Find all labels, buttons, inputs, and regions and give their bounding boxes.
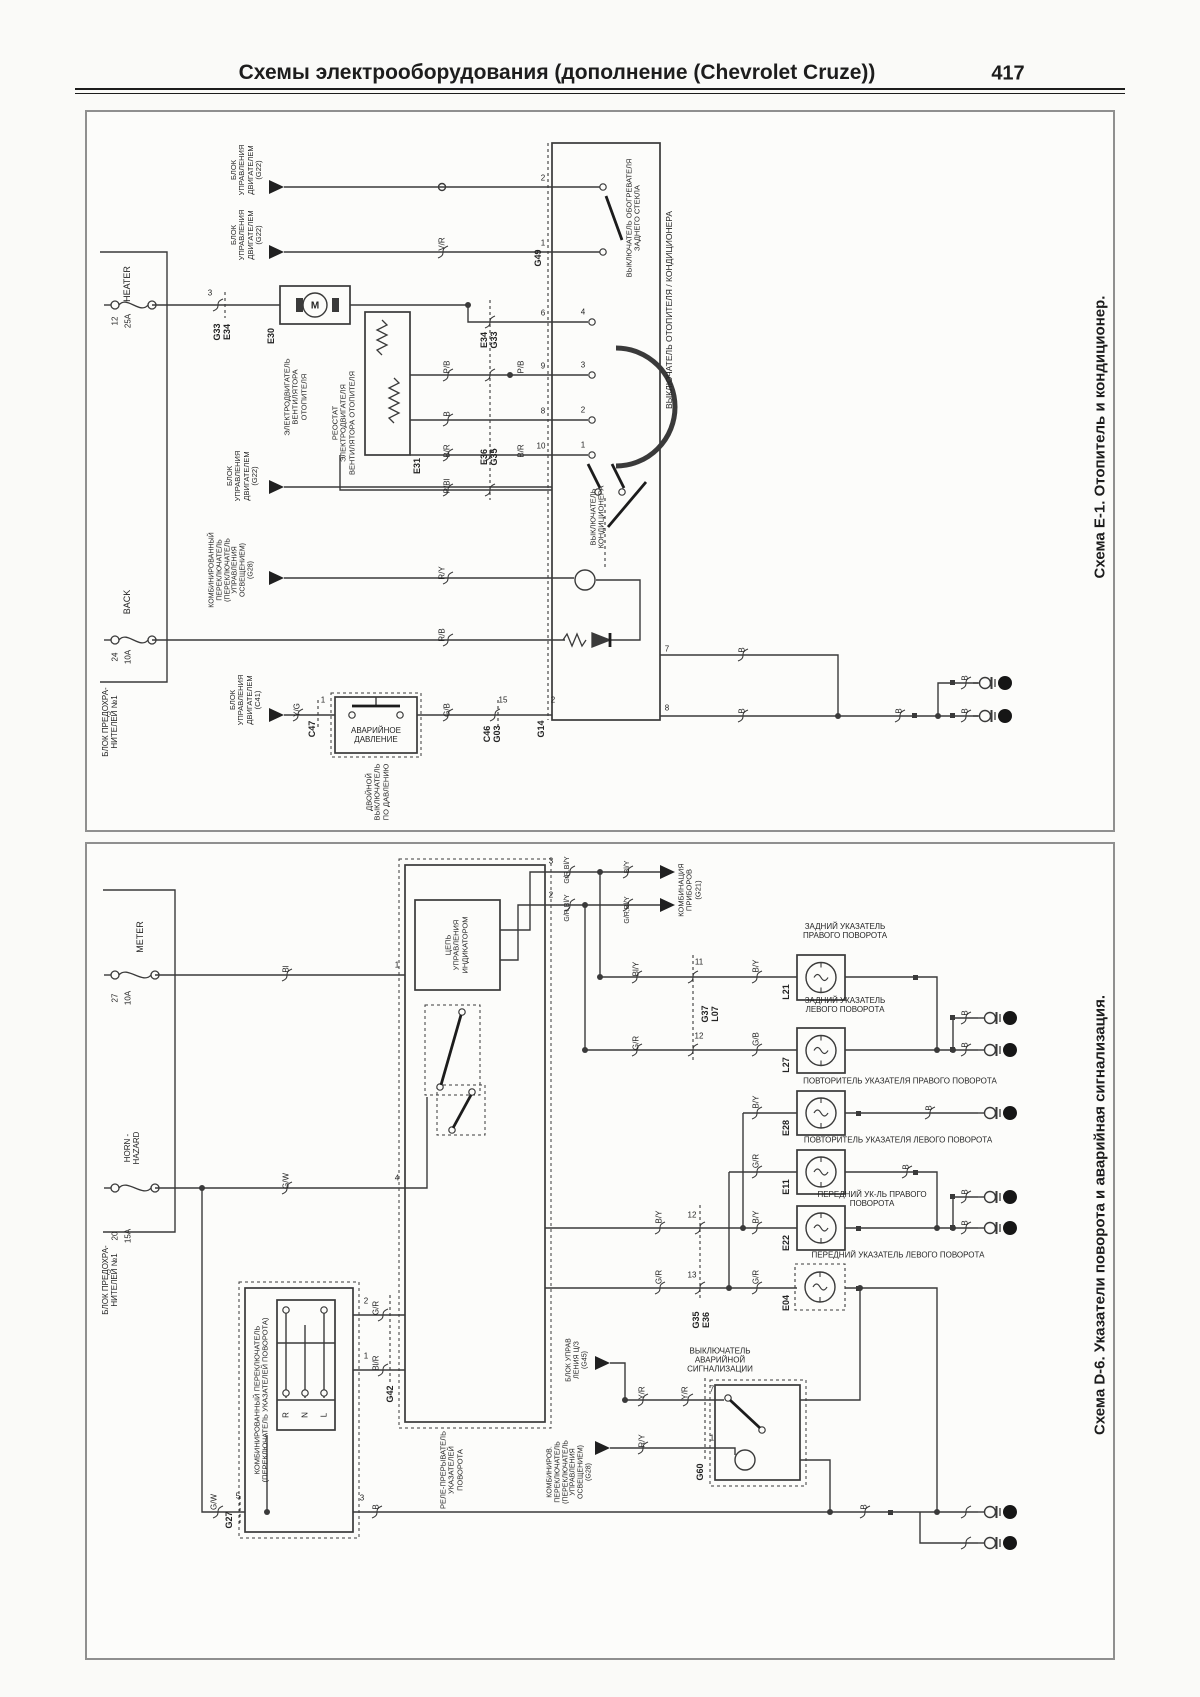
diagram-label: G/R,Bl/Y xyxy=(564,856,572,883)
diagram-label: БЛОК УПРАВЛЕНИЯ ДВИГАТЕЛЕМ (G22) xyxy=(230,210,264,261)
diagram-label: 1 xyxy=(321,697,325,706)
diagram-label: Bl/Y xyxy=(624,861,632,874)
contact xyxy=(302,1390,308,1396)
diagram-label: BACK xyxy=(122,590,132,615)
switch-blade xyxy=(441,1015,461,1085)
diagram-label: G27 xyxy=(224,1511,234,1528)
diagram-label: 10A xyxy=(125,991,134,1005)
diagram-label: G/R xyxy=(753,1270,762,1284)
diagram-label: E31 xyxy=(412,458,422,474)
tick xyxy=(332,298,339,312)
diagram-label: 1 xyxy=(710,1435,714,1444)
lamp-filament-icon xyxy=(814,1169,828,1175)
switch-blade xyxy=(730,1400,760,1428)
diagram-label: 10 xyxy=(537,443,546,452)
fuse-symbol xyxy=(119,972,151,978)
diagram-label: G/W xyxy=(283,1173,292,1189)
diagram-label: БЛОК ПРЕДОХРА- НИТЕЛЕЙ №1 xyxy=(102,687,120,756)
diagram-label: L xyxy=(321,1413,330,1417)
wire xyxy=(800,1460,830,1512)
schema-d6-caption: Схема D-6. Указатели поворота и аварийна… xyxy=(1092,995,1109,1435)
diagram-label: КОМБИНИРОВАННЫЙ ПЕРЕКЛЮЧАТЕЛЬ (ПЕРЕКЛЮЧА… xyxy=(209,532,256,607)
diagram-label: КОМБИНИРОВ. ПЕРЕКЛЮЧАТЕЛЬ (ПЕРЕКЛЮЧАТЕЛЬ… xyxy=(547,1440,594,1504)
diagram-label: G/R xyxy=(753,1154,762,1168)
ground-point-id xyxy=(1003,1043,1017,1057)
contact xyxy=(600,249,606,255)
tick xyxy=(950,713,955,718)
diagram-label: 15A xyxy=(125,1229,134,1243)
wire xyxy=(800,1288,860,1400)
diagram-label: 10A xyxy=(125,650,134,664)
junction-dot xyxy=(264,1509,270,1515)
diagram-label: 3 xyxy=(581,362,585,371)
junction-dot xyxy=(597,869,603,875)
diagram-label: C46 G03 xyxy=(482,725,502,742)
diagram-label: R/B xyxy=(439,628,448,641)
diagram-label: E28 xyxy=(781,1120,791,1136)
diagram-label: P/B xyxy=(518,361,527,374)
diagram-label: 2 xyxy=(549,892,553,901)
diagram-label: Bl/Y xyxy=(633,962,642,977)
diagram-label: БЛОК ПРЕДОХРА- НИТЕЛЕЙ №1 xyxy=(102,1245,120,1314)
wire xyxy=(610,1363,625,1400)
junction-dot xyxy=(622,1397,628,1403)
ground-symbol xyxy=(985,1108,996,1119)
diagram-label: B xyxy=(962,1220,971,1225)
diagram-label: ДВОЙНОЙ ВЫКЛЮЧАТЕЛЬ ПО ДАВЛЕНИЮ xyxy=(365,763,390,820)
contact xyxy=(349,712,355,718)
ground-symbol xyxy=(985,1045,996,1056)
diagram-label: ВЫКЛЮЧАТЕЛЬ КОНДИЦИОНЕРА xyxy=(590,486,607,549)
tick xyxy=(913,1170,918,1175)
diagram-label: 11 xyxy=(695,959,703,968)
diagram-label: B xyxy=(896,708,905,713)
diagram-label: B xyxy=(903,1164,912,1169)
diagram-label: HORN - HAZARD xyxy=(124,1132,142,1165)
connector-arrow xyxy=(269,480,284,494)
diagram-label: B xyxy=(861,1504,870,1509)
symbol-circle xyxy=(575,570,595,590)
diagram-label: БЛОК УПРАВЛЕНИЯ ДВИГАТЕЛЕМ (G22) xyxy=(230,145,264,196)
diagram-label: 2 xyxy=(364,1298,368,1307)
fuse-symbol xyxy=(111,971,119,979)
diagram-label: G/B xyxy=(753,1032,762,1046)
connector-arrow xyxy=(269,180,284,194)
fuse-symbol xyxy=(111,1184,119,1192)
contact xyxy=(283,1307,289,1313)
diagram-label: B xyxy=(962,1189,971,1194)
diagram-label: ЗАДНИЙ УКАЗАТЕЛЬ ПРАВОГО ПОВОРОТА xyxy=(803,923,887,941)
diagram-label: R/Y xyxy=(439,566,448,579)
diagram-label: G49 xyxy=(533,249,543,266)
diagram-label: L21 xyxy=(781,984,791,1000)
ground-point-id xyxy=(998,676,1012,690)
diagram-label: G/R xyxy=(656,1270,665,1284)
diagram-label: B xyxy=(739,647,748,652)
tick xyxy=(296,298,303,312)
junction-dot xyxy=(935,713,941,719)
diagram-label: 4 xyxy=(581,309,585,318)
symbol-path xyxy=(563,634,586,646)
ground-symbol xyxy=(980,711,991,722)
tick xyxy=(950,1225,955,1230)
wire xyxy=(405,1097,427,1188)
ground-symbol xyxy=(985,1538,996,1549)
ground-symbol xyxy=(985,1223,996,1234)
diagram-label: G42 xyxy=(385,1385,395,1402)
diagram-label: B xyxy=(962,1010,971,1015)
diagram-label: 12 xyxy=(688,1212,697,1221)
diagram-label: 7 xyxy=(710,1386,714,1395)
diagram-label: 15 xyxy=(499,697,508,706)
connector-arrow xyxy=(660,898,675,912)
junction-dot xyxy=(934,1225,940,1231)
diagram-label: 9 xyxy=(541,363,545,372)
diagram-label: B xyxy=(444,411,453,416)
junction-dot xyxy=(934,1509,940,1515)
contact xyxy=(459,1009,465,1015)
junction-dot xyxy=(934,1047,940,1053)
diagram-label: 25A xyxy=(125,314,134,328)
symbol-path xyxy=(592,633,610,647)
ground-symbol xyxy=(985,1507,996,1518)
junction-dot xyxy=(465,302,471,308)
diagram-label: B xyxy=(739,708,748,713)
diagram-label: P/B xyxy=(444,361,453,374)
wire xyxy=(610,1448,735,1455)
fuse-symbol xyxy=(119,302,148,308)
junction-dot xyxy=(835,713,841,719)
tick xyxy=(856,1111,861,1116)
diagram-label: ВЫКЛЮЧАТЕЛЬ АВАРИЙНОЙ СИГНАЛИЗАЦИИ xyxy=(687,1348,753,1375)
tick xyxy=(913,975,918,980)
diagram-label: METER xyxy=(135,921,145,953)
diagram-label: G37 L07 xyxy=(700,1005,720,1022)
tick xyxy=(950,680,955,685)
diagram-label: 5 xyxy=(236,1493,240,1502)
lamp-filament-icon xyxy=(814,1048,828,1054)
component-box xyxy=(365,312,410,455)
manual-page: Схемы электрооборудования (дополнение (C… xyxy=(0,0,1200,1697)
diagram-label: ЭЛЕКТРОДВИГАТЕЛЬ ВЕНТИЛЯТОРА ОТОПИТЕЛЯ xyxy=(283,358,308,435)
lamp-filament-icon xyxy=(813,1284,827,1290)
diagram-label: АВАРИЙНОЕ ДАВЛЕНИЕ xyxy=(351,727,401,745)
diagram-label: L27 xyxy=(781,1057,791,1073)
diagram-label: 1 xyxy=(364,1353,368,1362)
junction-dot xyxy=(740,1225,746,1231)
diagram-label: 12 xyxy=(695,1033,704,1042)
junction-dot xyxy=(507,372,513,378)
diagram-label: G/R xyxy=(373,1301,382,1315)
diagram-label: G35 E36 xyxy=(691,1311,711,1328)
connector-arrow xyxy=(595,1356,610,1370)
diagram-label: E04 xyxy=(781,1295,791,1311)
diagram-label: ВЫКЛЮЧАТЕЛЬ ОТОПИТЕЛЯ / КОНДИЦИОНЕРА xyxy=(665,211,675,409)
tick xyxy=(888,1510,893,1515)
tick xyxy=(856,1226,861,1231)
diagram-label: E30 xyxy=(266,328,276,344)
diagram-label: БЛОК УПРАВЛЕНИЯ ДВИГАТЕЛЕМ (G22) xyxy=(226,451,260,502)
component-box-dashed xyxy=(425,1005,480,1095)
fuse-symbol xyxy=(119,637,148,643)
diagram-label: Y/R xyxy=(639,1386,648,1399)
switch-blade xyxy=(453,1095,471,1128)
component-box xyxy=(552,143,660,720)
diagram-label: G/R,Bl/Y xyxy=(624,896,632,923)
schema-e1-caption: Схема Е-1. Отопитель и кондиционер. xyxy=(1092,296,1109,579)
diagram-label: E11 xyxy=(781,1179,791,1195)
diagram-label: РЕЛЕ-ПРЕРЫВАТЕЛЬ УКАЗАТЕЛЕЙ ПОВОРОТА xyxy=(439,1431,464,1509)
connector-arrow xyxy=(269,571,284,585)
lamp-filament-icon xyxy=(814,1110,828,1116)
diagram-label: 8 xyxy=(541,408,545,417)
junction-dot xyxy=(597,974,603,980)
ground-symbol xyxy=(980,678,991,689)
component-box-dashed xyxy=(399,859,551,1428)
diagram-label: КОМБИНАЦИЯ ПРИБОРОВ (G21) xyxy=(677,863,702,916)
diagram-label: Y/G xyxy=(294,703,303,717)
diagram-label: B/R xyxy=(444,444,453,457)
fuse-symbol xyxy=(111,301,119,309)
diagram-label: N xyxy=(302,1412,311,1418)
contact xyxy=(397,712,403,718)
ground-symbol xyxy=(985,1192,996,1203)
component-box-dashed xyxy=(710,1380,806,1486)
diagram-label: ПОВТОРИТЕЛЬ УКАЗАТЕЛЯ ЛЕВОГО ПОВОРОТА xyxy=(804,1137,992,1146)
symbol-path xyxy=(389,378,399,423)
diagram-label: 3 xyxy=(360,1495,364,1504)
diagram-label: 6 xyxy=(541,310,545,319)
diagram-label: 8 xyxy=(665,705,669,714)
component-box xyxy=(405,865,545,1422)
diagram-label: G14 xyxy=(536,720,546,737)
junction-dot xyxy=(582,1047,588,1053)
diagram-label: 1 xyxy=(395,962,399,971)
ground-point-id xyxy=(1003,1011,1017,1025)
diagram-label: 2 xyxy=(581,407,585,416)
diagram-label: E34 G33 xyxy=(479,331,499,348)
diagram-label: БЛОК УПРАВ ЛЕНИЯ Ц/З (G45) xyxy=(565,1338,588,1382)
diagram-label: B xyxy=(373,1504,382,1509)
diagram-label: БЛОК УПРАВЛЕНИЯ ДВИГАТЕЛЕМ (C41) xyxy=(229,675,263,726)
diagram-label: 3 xyxy=(549,858,553,867)
ground-point-id xyxy=(1003,1536,1017,1550)
connector-arrow xyxy=(595,1441,610,1455)
contact xyxy=(589,417,595,423)
diagram-label: G/R,Bl/Y xyxy=(564,894,572,921)
diagram-label: G60 xyxy=(695,1463,705,1480)
connector-arrow xyxy=(269,708,284,722)
diagram-label: B/Y xyxy=(753,960,762,973)
diagram-label: 2 xyxy=(551,697,555,706)
contact xyxy=(619,489,625,495)
tick xyxy=(950,1047,955,1052)
wire xyxy=(596,580,640,640)
ground-point-id xyxy=(1003,1190,1017,1204)
diagram-label: 27 xyxy=(112,994,121,1003)
lamp-filament-icon xyxy=(814,1225,828,1231)
wire xyxy=(500,905,545,960)
diagram-label: 24 xyxy=(112,653,121,662)
diagram-label: ПОВТОРИТЕЛЬ УКАЗАТЕЛЯ ПРАВОГО ПОВОРОТА xyxy=(803,1078,997,1087)
diagram-label: C47 xyxy=(307,721,317,738)
contact xyxy=(589,319,595,325)
diagram-label: B/R xyxy=(518,444,527,457)
contact xyxy=(283,1390,289,1396)
diagram-label: B xyxy=(962,1042,971,1047)
contact xyxy=(321,1307,327,1313)
diagram-label: Bl xyxy=(283,965,292,972)
diagram-label: 20 xyxy=(112,1232,121,1241)
ground-point-id xyxy=(1003,1221,1017,1235)
diagram-label: B xyxy=(962,675,971,680)
fuse-symbol xyxy=(119,1185,151,1191)
diagram-label: E36 G35 xyxy=(479,448,499,465)
wire xyxy=(938,683,978,716)
diagram-label: B xyxy=(962,708,971,713)
contact xyxy=(469,1089,475,1095)
diagram-label: 3 xyxy=(208,290,212,299)
wire xyxy=(660,655,838,716)
connector-arrow xyxy=(269,245,284,259)
wire xyxy=(500,872,545,930)
switch-blade xyxy=(608,482,646,527)
component-box-dashed xyxy=(437,1085,485,1135)
contact xyxy=(321,1390,327,1396)
diagram-label: ВЫКЛЮЧАТЕЛЬ ОБОГРЕВАТЕЛЯ ЗАДНЕГО СТЕКЛА xyxy=(626,159,643,278)
wiring-diagram-canvas xyxy=(0,0,1200,1697)
ground-point-id xyxy=(998,709,1012,723)
ground-point-id xyxy=(1003,1106,1017,1120)
diagram-label: Y/R xyxy=(682,1386,691,1399)
ground-symbol xyxy=(985,1013,996,1024)
diagram-label: R/Y xyxy=(639,1434,648,1447)
tick xyxy=(912,713,917,718)
tick xyxy=(856,1286,861,1291)
junction-dot xyxy=(199,1185,205,1191)
tick xyxy=(950,1015,955,1020)
diagram-label: HEATER xyxy=(122,266,132,302)
diagram-label: 7 xyxy=(665,646,669,655)
diagram-label: ПЕРЕДНИЙ УКАЗАТЕЛЬ ЛЕВОГО ПОВОРОТА xyxy=(812,1252,985,1261)
diagram-label: РЕОСТАТ ЭЛЕКТРОДВИГАТЕЛЯ ВЕНТИЛЯТОРА ОТО… xyxy=(331,371,356,475)
connector-arrow xyxy=(660,865,675,879)
diagram-label: V/R xyxy=(439,237,448,250)
diagram-label: B/Y xyxy=(753,1211,762,1224)
diagram-label: ПЕРЕДНИЙ УК-ЛЬ ПРАВОГО ПОВОРОТА xyxy=(817,1191,926,1209)
diagram-label: ЗАДНИЙ УКАЗАТЕЛЬ ЛЕВОГО ПОВОРОТА xyxy=(805,997,886,1015)
diagram-label: КОМБИНИРОВАННЫЙ ПЕРЕКЛЮЧАТЕЛЬ (ПЕРЕКЛЮЧА… xyxy=(254,1318,271,1483)
diagram-label: 4 xyxy=(395,1175,399,1184)
diagram-label: P/Bl xyxy=(444,479,453,494)
diagram-label: G/B xyxy=(444,703,453,717)
diagram-label: 12 xyxy=(112,317,121,326)
diagram-label: Bl/R xyxy=(373,1355,382,1370)
fuse-symbol xyxy=(111,636,119,644)
diagram-label: ЦЕПЬ УПРАВЛЕНИЯ ИНДИКАТОРОМ xyxy=(444,916,469,973)
diagram-label: 13 xyxy=(688,1272,697,1281)
contact xyxy=(600,184,606,190)
contact xyxy=(589,452,595,458)
diagram-label: M xyxy=(311,300,319,311)
symbol-path xyxy=(377,320,387,355)
diagram-label: G33 E34 xyxy=(212,323,232,340)
tick xyxy=(950,1194,955,1199)
diagram-label: B/Y xyxy=(656,1211,665,1224)
junction-dot xyxy=(726,1285,732,1291)
switch-blade xyxy=(588,464,600,488)
symbol-circle xyxy=(735,1450,755,1470)
switch-blade xyxy=(606,196,622,240)
junction-dot xyxy=(582,902,588,908)
junction-dot xyxy=(827,1509,833,1515)
diagram-label: G/W xyxy=(211,1494,220,1510)
diagram-label: R xyxy=(283,1412,292,1418)
diagram-label: B xyxy=(926,1105,935,1110)
diagram-label: 1 xyxy=(581,442,585,451)
diagram-label: E22 xyxy=(781,1235,791,1251)
diagram-label: G/R xyxy=(633,1036,642,1050)
contact xyxy=(589,372,595,378)
diagram-label: 2 xyxy=(541,175,545,184)
ground-point-id xyxy=(1003,1505,1017,1519)
diagram-label: B/Y xyxy=(753,1096,762,1109)
diagram-label: 1 xyxy=(541,240,545,249)
lamp-filament-icon xyxy=(814,975,828,981)
